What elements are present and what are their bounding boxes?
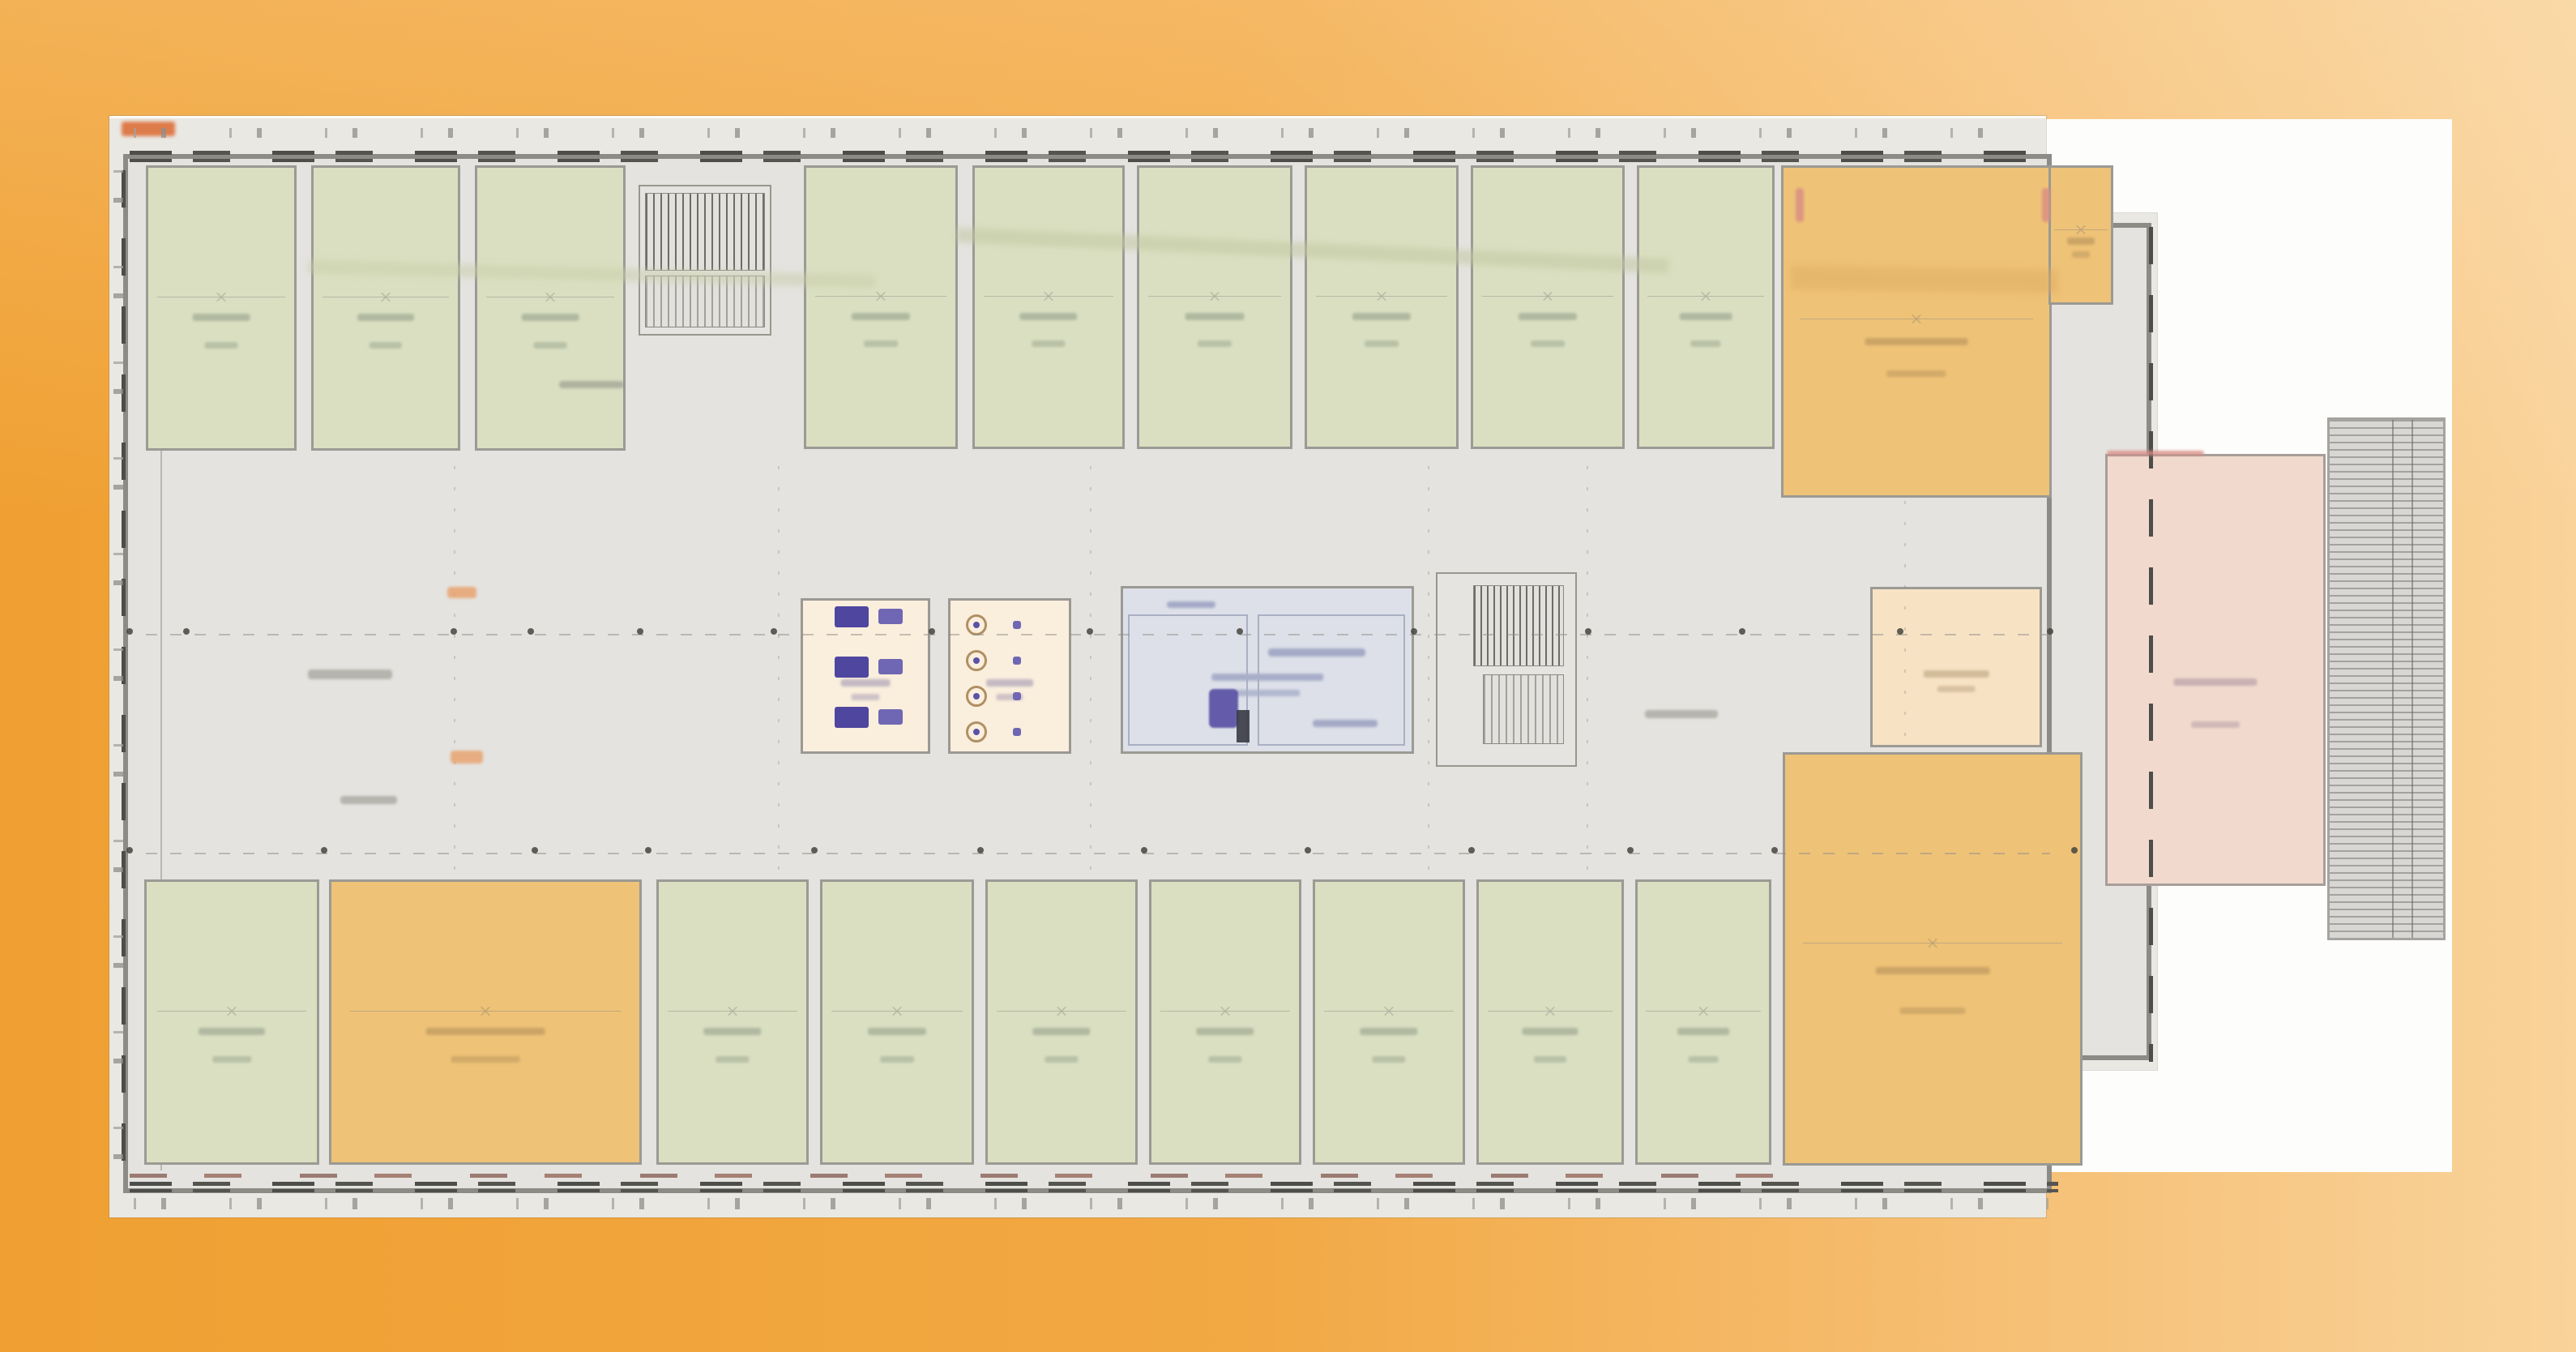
dimension-line <box>1488 1011 1613 1012</box>
room-label-smudge <box>212 1056 251 1063</box>
column-grid-dot <box>1411 628 1417 635</box>
stair-central-upper <box>1473 585 1564 666</box>
room-label-smudge <box>1032 340 1065 347</box>
room-top-mid-5 <box>1471 165 1625 449</box>
room-label-smudge <box>1032 1028 1090 1035</box>
dimension-line <box>1148 296 1281 297</box>
room-top-right-hall-nub <box>2048 165 2113 305</box>
wc-basin <box>966 686 987 707</box>
dimension-line <box>1160 1011 1290 1012</box>
column-grid-dot <box>1739 628 1745 635</box>
wc-fixture-small <box>878 709 903 725</box>
wc-basin-dot <box>1013 621 1021 629</box>
elevator-mark-blob <box>1209 689 1238 728</box>
room-label-smudge <box>1196 1028 1254 1035</box>
room-label-smudge <box>2072 251 2090 258</box>
dimension-line <box>1316 296 1447 297</box>
column-grid-dot <box>637 628 643 635</box>
room-top-mid-2 <box>972 165 1125 449</box>
window-band-top-outer <box>130 151 2042 155</box>
dimension-cross-mark <box>1384 1007 1393 1016</box>
room-bottom-2 <box>656 879 809 1165</box>
room-label-smudge <box>1689 1056 1719 1063</box>
room-label-smudge <box>1924 670 1989 678</box>
room-bottom-3 <box>820 879 974 1165</box>
window-band-bottom-inner <box>130 1189 2058 1192</box>
wc-basin-dot <box>1013 728 1021 736</box>
door-accent-mark <box>447 587 476 598</box>
window-band-top-inner <box>130 159 2042 162</box>
dimension-cross-mark <box>1701 292 1710 301</box>
room-label-smudge <box>357 314 414 321</box>
column-grid-dot <box>1627 847 1634 854</box>
dimension-cross-mark <box>227 1007 236 1016</box>
window-band-bottom-outer <box>130 1182 2058 1186</box>
terrace-joint-line <box>2392 420 2394 938</box>
dimension-line <box>997 1011 1126 1012</box>
room-top-left-2 <box>311 165 460 451</box>
room-label-smudge <box>1522 1028 1578 1035</box>
dimension-line <box>1482 296 1613 297</box>
wc-fixture <box>835 657 869 678</box>
dimension-cross-mark <box>1057 1007 1066 1016</box>
room-label-smudge <box>864 340 898 347</box>
column-grid-dot <box>1141 847 1147 854</box>
dimension-cross-mark <box>481 1007 489 1016</box>
room-top-left-1 <box>146 165 297 451</box>
room-label-smudge <box>1937 686 1976 692</box>
column-grid-dot <box>1237 628 1243 635</box>
room-top-right-hall <box>1781 165 2052 498</box>
dimension-cross-mark <box>1928 939 1937 948</box>
grid-centerline-upper <box>146 634 2050 635</box>
elevator-label-smudge <box>1167 601 1215 608</box>
room-bottom-right-hall <box>1783 752 2083 1166</box>
room-label-smudge <box>1208 1056 1241 1063</box>
stair-central-lower <box>1483 674 1564 744</box>
room-label-smudge <box>841 679 891 687</box>
dimension-line <box>668 1011 797 1012</box>
dimension-line <box>815 296 946 297</box>
dimension-cross-mark <box>216 293 225 302</box>
room-label-smudge <box>703 1028 761 1035</box>
elevator-mark-dark <box>1237 710 1250 742</box>
grid-dashed-line <box>1587 466 1588 875</box>
wc-fixture <box>835 707 869 728</box>
dimension-line <box>1647 296 1764 297</box>
dimension-cross-mark <box>1220 1007 1229 1016</box>
room-label-smudge <box>1360 1028 1417 1035</box>
column-grid-dot <box>771 628 777 635</box>
dimension-line <box>1803 943 2062 943</box>
grid-dashed-line <box>1090 466 1091 875</box>
column-grid-dot <box>321 847 327 854</box>
wc-basin <box>966 721 987 742</box>
dimension-line <box>2054 229 2107 230</box>
room-bottom-6 <box>1313 879 1465 1165</box>
grid-centerline-lower <box>146 853 2050 854</box>
dim-strip-left <box>113 170 123 1175</box>
corridor-label-smudge <box>559 381 624 388</box>
dimension-line <box>157 1011 307 1012</box>
column-grid-dot <box>1468 847 1475 854</box>
column-grid-dot <box>532 847 538 854</box>
floor-plan-scan <box>0 0 2576 1352</box>
column-grid-dot <box>2047 628 2053 635</box>
dimension-cross-mark <box>892 1007 901 1016</box>
room-label-smudge <box>716 1056 749 1063</box>
column-grid-dot <box>977 847 984 854</box>
column-grid-dot <box>126 847 133 854</box>
room-label-smudge <box>1531 340 1565 347</box>
room-label-smudge <box>1690 340 1720 347</box>
column-grid-dot <box>183 628 190 635</box>
room-label-smudge <box>205 342 238 349</box>
room-label-smudge <box>1365 340 1399 347</box>
wc-basin <box>966 614 987 635</box>
room-label-smudge <box>1044 1056 1078 1063</box>
grid-dashed-line <box>778 466 780 875</box>
grid-dashed-line <box>1428 466 1429 875</box>
grid-dashed-line <box>454 466 455 875</box>
dimension-cross-mark <box>1912 314 1920 323</box>
column-grid-dot <box>1771 847 1778 854</box>
room-label-smudge <box>1876 967 1990 974</box>
room-label-smudge <box>370 342 402 349</box>
room-label-smudge <box>193 314 250 321</box>
wc-fixture-small <box>878 659 903 674</box>
dimension-cross-mark <box>728 1007 737 1016</box>
room-label-smudge <box>852 313 910 320</box>
column-grid-dot <box>811 847 818 854</box>
room-label-smudge <box>2191 721 2240 728</box>
corridor-label-smudge <box>308 670 392 679</box>
dimension-cross-mark <box>1698 1007 1707 1016</box>
dimension-cross-mark <box>545 293 554 302</box>
room-label-smudge <box>451 1056 520 1063</box>
wc-fixture <box>835 606 869 627</box>
room-label-smudge <box>1519 313 1577 320</box>
room-label-smudge <box>868 1028 926 1035</box>
room-bottom-7 <box>1476 879 1624 1165</box>
dimension-line <box>486 297 614 297</box>
column-grid-dot <box>1305 847 1311 854</box>
room-bottom-left-1 <box>144 879 319 1165</box>
floor-plan-layer <box>0 0 2576 1352</box>
room-label-smudge <box>1677 1028 1729 1035</box>
room-label-smudge <box>1534 1056 1566 1063</box>
terrace-hatched <box>2327 417 2446 940</box>
column-grid-dot <box>126 628 133 635</box>
dimension-line <box>1646 1011 1762 1012</box>
room-bottom-5 <box>1149 879 1301 1165</box>
door-accent-mark <box>1796 188 1804 222</box>
room-label-smudge <box>1899 1008 1965 1014</box>
room-label-smudge <box>1372 1056 1405 1063</box>
room-top-mid-6 <box>1637 165 1775 449</box>
room-label-smudge <box>1886 370 1946 377</box>
room-top-mid-3 <box>1137 165 1292 449</box>
room-ext-room <box>2105 454 2326 886</box>
room-label-smudge <box>199 1028 265 1035</box>
dimension-cross-mark <box>1543 292 1552 301</box>
column-grid-dot <box>1897 628 1903 635</box>
room-label-smudge <box>2067 237 2095 245</box>
dimension-line <box>157 297 285 297</box>
dimension-line <box>350 1011 621 1012</box>
terrace-joint-line <box>2412 420 2413 938</box>
dimension-cross-mark <box>1377 292 1386 301</box>
corridor-label-smudge <box>1645 710 1718 718</box>
room-label-smudge <box>1352 313 1411 320</box>
door-accent-mark <box>2107 451 2204 456</box>
room-label-smudge <box>986 679 1033 687</box>
room-label-smudge <box>522 314 579 321</box>
door-accent-mark <box>451 751 483 764</box>
column-grid-dot <box>528 628 534 635</box>
room-label-smudge <box>1680 313 1732 320</box>
dimension-cross-mark <box>1044 292 1053 301</box>
window-band-wing-right <box>2149 227 2153 1062</box>
elevator-label-smudge <box>1268 648 1365 657</box>
dim-strip-bottom <box>134 1198 2054 1209</box>
room-label-smudge <box>1865 338 1968 345</box>
door-accent-mark <box>2042 188 2050 222</box>
room-bottom-4 <box>985 879 1138 1165</box>
room-label-smudge <box>1185 313 1245 320</box>
dimension-cross-mark <box>2076 225 2085 234</box>
room-label-smudge <box>2173 678 2257 686</box>
room-top-mid-4 <box>1305 165 1459 449</box>
room-label-smudge <box>1198 340 1232 347</box>
scan-crease-stain <box>1791 265 2058 294</box>
grid-dashed-line <box>1904 501 1906 750</box>
dimension-line <box>1324 1011 1454 1012</box>
dim-strip-top <box>134 128 2030 138</box>
room-label-smudge <box>426 1028 545 1035</box>
column-grid-dot <box>929 628 935 635</box>
room-service-room <box>1870 587 2042 747</box>
room-label-smudge <box>851 694 879 700</box>
column-grid-dot <box>645 847 651 854</box>
wc-basin-dot <box>1013 657 1021 665</box>
wc-basin <box>966 650 987 671</box>
room-top-mid-1 <box>804 165 958 449</box>
dimension-line <box>984 296 1113 297</box>
dimension-cross-mark <box>381 293 390 302</box>
corridor-label-smudge <box>340 796 397 804</box>
elevator-label-smudge <box>1313 720 1378 727</box>
room-label-smudge <box>1019 313 1077 320</box>
stair-top-left-upper <box>645 193 765 271</box>
room-label-smudge <box>880 1056 914 1063</box>
dimension-cross-mark <box>1545 1007 1554 1016</box>
room-bottom-hall <box>329 879 642 1165</box>
room-label-smudge <box>534 342 567 349</box>
room-top-left-3 <box>475 165 626 451</box>
window-band-bottom-brown <box>130 1174 1783 1178</box>
column-grid-dot <box>2071 847 2078 854</box>
room-bottom-8 <box>1635 879 1771 1165</box>
dimension-line <box>1800 319 2034 319</box>
dimension-line <box>323 297 450 297</box>
dimension-cross-mark <box>1210 292 1219 301</box>
dimension-line <box>831 1011 963 1012</box>
wc-basin-dot <box>1013 692 1021 700</box>
dimension-cross-mark <box>876 292 885 301</box>
wc-fixture-small <box>878 609 903 624</box>
